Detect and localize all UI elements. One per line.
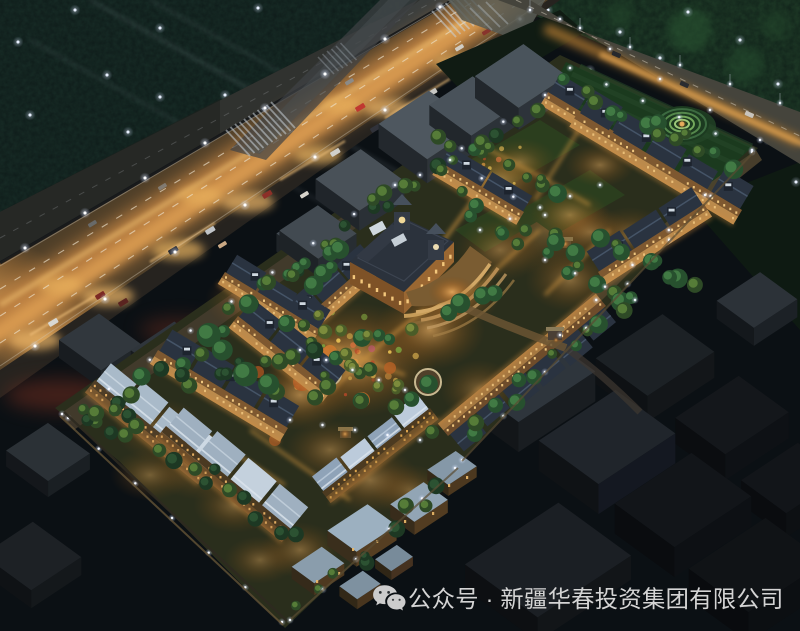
svg-text:公众号 · 新疆华春投资集团有限公司: 公众号 · 新疆华春投资集团有限公司 <box>408 586 784 612</box>
